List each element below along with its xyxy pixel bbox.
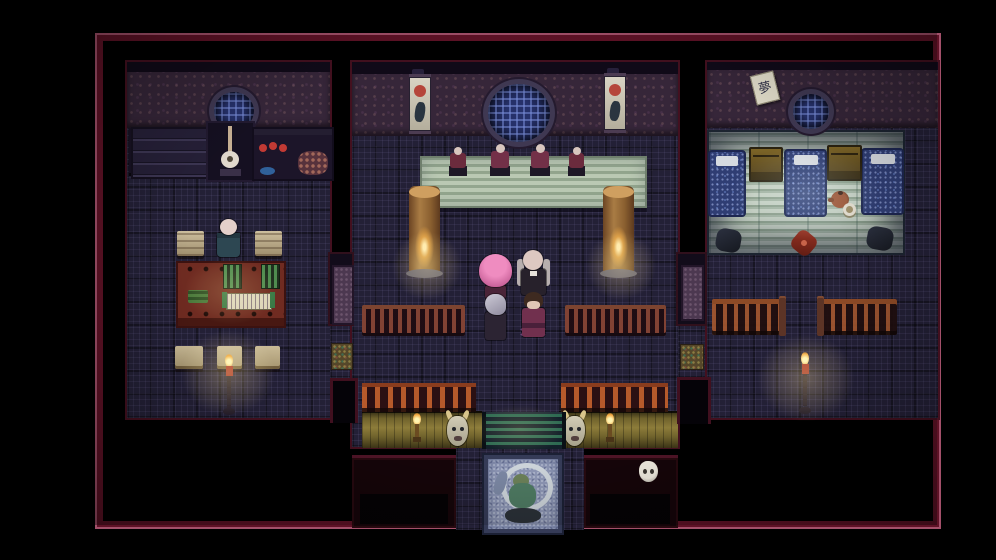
log-top: [409, 186, 440, 198]
doll-body: [569, 153, 584, 168]
teapot-spout: [828, 198, 834, 202]
npc-pink-hair[interactable]: [479, 254, 512, 299]
bottle-crate-a: [223, 264, 242, 289]
small-skull-item: [639, 461, 658, 482]
vermilion-railing-left: [362, 383, 476, 412]
mask-eye-left: [452, 427, 456, 431]
corridor-right-doorway[interactable]: [677, 377, 711, 424]
futon-pillow: [716, 156, 738, 166]
futon-3: [861, 148, 904, 215]
log-top: [603, 186, 634, 198]
doll-body: [491, 151, 509, 168]
left-shelf: [252, 127, 334, 181]
red-fruit-2: [269, 142, 277, 150]
hina-doll-1: [447, 144, 469, 176]
log-lantern-left: [409, 186, 440, 276]
red-fruit-1: [259, 144, 267, 152]
mask-mouth: [571, 436, 579, 441]
lower-wall-left: [352, 455, 456, 528]
futon-2: [784, 149, 827, 217]
sconce-stem: [415, 424, 419, 438]
bottle-crate-b: [261, 264, 280, 289]
mask-mouth: [454, 436, 462, 441]
red-counter-table[interactable]: [176, 261, 286, 328]
npc-bald-elder[interactable]: [517, 250, 550, 297]
mask-eye-right: [577, 427, 581, 431]
sconce-stem: [608, 424, 612, 438]
crane-scroll-left: [409, 77, 431, 131]
skull-eye-left: [643, 469, 647, 474]
candle-holder: [802, 364, 809, 374]
blue-bowl: [260, 167, 275, 175]
wall-opening: [360, 494, 448, 524]
rug-demon-body: [509, 483, 536, 508]
elder-collar: [530, 271, 537, 276]
bench-post-a: [779, 296, 786, 336]
npc-silver-hair[interactable]: [483, 294, 508, 342]
shamisen-alcove: [206, 121, 255, 182]
npc-child-purple[interactable]: [520, 292, 547, 341]
oni-mask-left: [443, 410, 472, 448]
mask-face: [564, 416, 585, 446]
pink-hair: [479, 254, 512, 287]
scroll-roller-right: [270, 292, 275, 308]
doll-head: [454, 147, 462, 155]
vermilion-railing-right: [561, 383, 668, 412]
monk-head: [220, 219, 237, 235]
hall-bench-right: [565, 305, 666, 336]
log-base: [406, 269, 443, 278]
small-table-3: [255, 346, 280, 369]
candle-pole: [803, 374, 807, 406]
teapot-lid: [838, 191, 843, 195]
elder-head: [523, 250, 543, 270]
bundle-knot: [800, 239, 808, 247]
corridor-right-rug: [680, 344, 704, 370]
candle-stand-right: [798, 352, 812, 414]
scroll-sun: [414, 85, 426, 97]
corridor-left-rug: [331, 343, 353, 370]
right-bench-b: [820, 299, 897, 335]
open-scroll: [226, 293, 272, 310]
game-viewport[interactable]: 夢: [0, 0, 996, 560]
bench-post-b: [817, 296, 824, 336]
shamisen-stand: [220, 169, 241, 176]
scroll-crane: [609, 100, 622, 121]
doll-body: [531, 151, 549, 168]
doll-head: [496, 144, 505, 153]
log-lantern-right: [603, 186, 634, 276]
cabinet-lid-line: [753, 155, 779, 157]
dried-bouquet: [298, 151, 328, 175]
child-belt: [522, 323, 545, 328]
log-base: [600, 269, 637, 278]
scroll-sun: [609, 84, 621, 96]
silver-hair: [485, 294, 506, 315]
hina-doll-2: [488, 142, 512, 176]
lintel-ornament-left: [412, 69, 424, 76]
skull-eye-right: [650, 469, 654, 474]
corridor-right-tapestry: [681, 265, 704, 321]
wall-sconce-right: [604, 413, 616, 444]
wall-sconce-left: [411, 413, 423, 444]
hall-bench-left: [362, 305, 465, 336]
doll-head: [573, 147, 581, 155]
small-table-1: [175, 346, 203, 369]
candle-holder: [226, 366, 233, 376]
entrance-steps[interactable]: [482, 412, 566, 449]
right-bench-a: [712, 299, 780, 335]
doll-body: [450, 153, 466, 168]
mask-face: [447, 416, 468, 446]
child-face: [527, 301, 540, 309]
shamisen-soundhole: [227, 156, 233, 162]
log-flame-glow: [609, 226, 628, 268]
rug-dark-cloud: [505, 508, 541, 523]
sconce-cup: [413, 437, 421, 442]
corridor-left-doorway[interactable]: [330, 378, 358, 423]
scroll-crane: [414, 101, 427, 122]
candle-pole: [227, 376, 231, 408]
futon-pillow: [794, 155, 818, 165]
teacup-inner: [846, 206, 853, 213]
wall-opening: [590, 494, 670, 524]
doll-head: [536, 144, 545, 153]
bedside-cabinet-2: [827, 145, 862, 181]
candle-stand-left: [222, 354, 236, 415]
left-bench-b: [255, 231, 282, 256]
left-dresser: [131, 127, 209, 179]
corridor-left-tapestry: [332, 265, 354, 325]
teacup: [843, 203, 856, 216]
crane-scroll-right: [604, 76, 626, 130]
right-round-window: [788, 89, 834, 134]
log-flame-glow: [415, 226, 434, 268]
main-round-window: [483, 79, 555, 147]
silver-body: [485, 312, 506, 340]
lintel-ornament-right: [607, 68, 619, 75]
mask-eye-right: [460, 427, 464, 431]
candle-base: [799, 407, 811, 414]
demon-entrance-rug[interactable]: [484, 455, 562, 533]
futon-pillow: [871, 154, 895, 164]
bedside-cabinet-1: [749, 147, 783, 182]
red-fruit-3: [279, 144, 287, 152]
green-scroll-bundle: [188, 290, 208, 303]
hina-doll-4: [566, 144, 587, 176]
lower-wall-right: [584, 455, 678, 528]
npc-monk[interactable]: [216, 219, 241, 258]
candle-base: [223, 408, 235, 415]
cabinet-lid-line: [831, 153, 858, 155]
hina-doll-3: [528, 142, 552, 176]
scroll-roller-left: [222, 292, 227, 308]
sconce-cup: [606, 437, 614, 442]
left-bench-a: [177, 231, 204, 256]
futon-1: [708, 150, 746, 217]
mask-eye-left: [569, 427, 573, 431]
